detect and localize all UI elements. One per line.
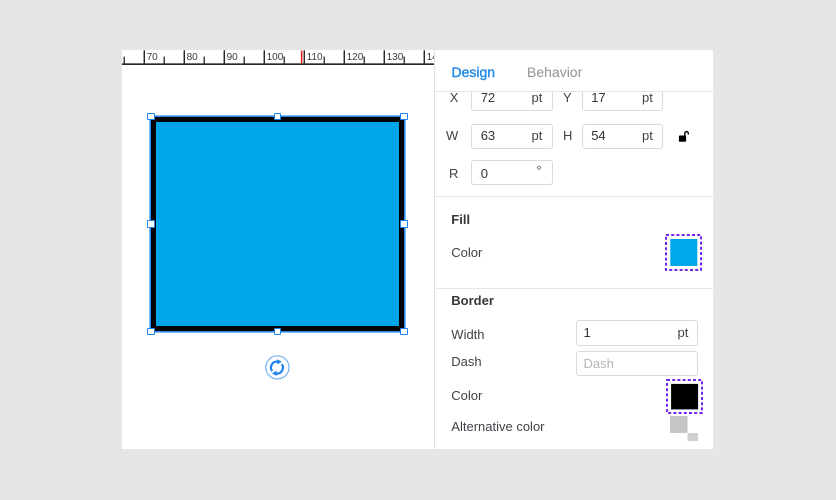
svg-text:100: 100: [266, 52, 283, 63]
svg-text:90: 90: [226, 52, 238, 63]
svg-text:14: 14: [426, 52, 434, 63]
svg-text:110: 110: [306, 52, 322, 63]
svg-text:70: 70: [146, 52, 158, 63]
svg-text:130: 130: [386, 52, 403, 63]
svg-text:80: 80: [186, 52, 198, 63]
svg-text:120: 120: [346, 52, 363, 63]
